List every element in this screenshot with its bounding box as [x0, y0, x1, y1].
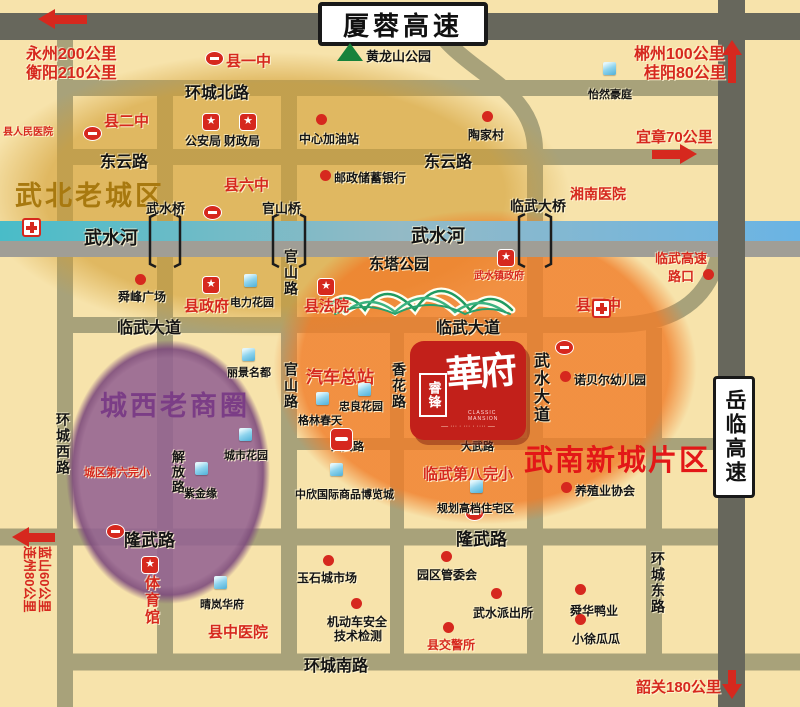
road-label-dongyun-east: 东云路 [424, 148, 472, 172]
poi-zhongxinjiayou-icon [316, 114, 327, 125]
poi-renminyiyuan-label: 县人民医院 [3, 123, 53, 138]
road-label-longwu-west: 隆武路 [124, 526, 175, 551]
arrow-east-icon [652, 144, 697, 164]
poi-xianliuzhong-icon [203, 205, 222, 220]
poi-gelin-label: 格林春天 [298, 412, 342, 428]
poi-shunfeng-label: 舜峰广场 [118, 288, 166, 305]
poi-gaosulukou-icon [703, 269, 714, 280]
poi-xianyizhong-label: 县一中 [226, 50, 271, 71]
poi-xianzhongyiyuan-label: 县中医院 [208, 621, 268, 642]
poi-gaosulukou-label: 临武高速 [655, 248, 707, 267]
poi-tiyuguan-label: 体育馆 [141, 575, 162, 626]
poi-jidongche-label2: 技术检测 [334, 627, 382, 644]
poi-xianyizhong-icon [205, 51, 224, 66]
road-label-dawu-east: 大武路 [461, 438, 494, 454]
poi-zhongliang-icon [358, 383, 371, 396]
poi-guihua-label: 规划高档住宅区 [437, 500, 514, 516]
arrow-west-icon [38, 9, 87, 29]
poi-xianliuzhong-label: 县六中 [224, 174, 269, 195]
poi-chengshi-icon [239, 428, 252, 441]
distance-lanshan: 蓝山60公里 [37, 546, 52, 612]
poi-zijin-label: 紫金缘 [184, 485, 217, 501]
poi-taojiacun-icon [482, 111, 493, 122]
poi-shunfeng-icon [135, 274, 146, 285]
poi-huanglongshan-label: 黄龙山公园 [366, 46, 431, 65]
poi-qinglan-label: 晴岚华府 [200, 596, 244, 612]
road-label-ring-west: 环城西路 [53, 412, 73, 476]
poi-dianli-label: 电力花园 [230, 294, 274, 310]
right-highway-label: 岳临高速 [719, 389, 749, 485]
poi-guihua-icon [470, 480, 483, 493]
arrow-west-longwu-icon [12, 527, 55, 547]
road-label-ring-north: 环城北路 [185, 79, 249, 103]
distance-guiyang: 桂阳80公里 [644, 59, 726, 83]
poi-wushuizhen-icon [497, 249, 515, 267]
poi-yushi-label: 玉石城市场 [297, 569, 357, 586]
bridge-label-guanshan: 官山桥 [262, 198, 301, 217]
road-label-ring-south: 环城南路 [304, 652, 368, 676]
poi-xianerzhong-label: 县二中 [104, 110, 149, 131]
poi-paichusuo-label: 武水派出所 [473, 604, 533, 621]
poi-xianfayuan-icon [317, 278, 335, 296]
poi-xiaoxuguagua-icon [575, 614, 586, 625]
top-highway-label: 厦蓉高速 [343, 6, 463, 43]
poi-xiangnanyiyuan-label: 湘南医院 [570, 184, 626, 204]
arrow-south-icon [722, 670, 742, 699]
distance-shaoguan: 韶关180公里 [636, 676, 721, 697]
poi-dongta-label: 东塔公园 [369, 253, 429, 274]
logo-seal-icon: 睿锋 [419, 373, 447, 417]
poi-caizheng-icon [239, 113, 257, 131]
poi-qichezongzhan-icon [330, 428, 353, 451]
road-label-longwu-east: 隆武路 [456, 525, 507, 550]
top-highway-sign: 厦蓉高速 [318, 2, 488, 46]
right-highway-sign: 岳临高速 [713, 376, 755, 498]
river-label-west: 武水河 [84, 224, 138, 250]
poi-yiran-icon [603, 62, 616, 75]
road-label-linwu-ave-west: 临武大道 [117, 314, 181, 338]
poi-yangzhi-icon [561, 482, 572, 493]
project-logo: 睿锋 華府 CLASSIC MANSION — ··· · ··· · ····… [410, 341, 526, 440]
poi-zhongxinguoji-label: 中欣国际商品博览城 [295, 486, 394, 502]
bridge-label-wushui: 武水桥 [146, 198, 185, 217]
road-label-guanshan-south: 官山路 [281, 362, 301, 410]
logo-tagline: — ··· · ··· · ···· — [410, 423, 526, 430]
poi-xiangnanyiyuan-icon [592, 299, 611, 318]
poi-xiaoxuguagua-label: 小徐瓜瓜 [572, 630, 620, 647]
poi-lijing-icon [242, 348, 255, 361]
distance-hengyang: 衡阳210公里 [26, 59, 117, 83]
poi-gongan-label: 公安局 [185, 132, 221, 149]
poi-nuobeier-icon [560, 371, 571, 382]
logo-brand-name: 華府 [444, 340, 517, 405]
distance-lianzhou: 连州80公里 [22, 546, 37, 612]
poi-xianzhengfu-icon [202, 276, 220, 294]
distance-lanshan-lianzhou: 蓝山60公里 连州80公里 [22, 546, 52, 612]
zone-label-west-old-business: 城西老商圈 [100, 384, 250, 423]
poi-gelin-icon [316, 392, 329, 405]
road-label-guanshan-north: 官山路 [281, 249, 301, 297]
river-label-east: 武水河 [411, 222, 465, 248]
poi-jiaojing-label: 县交警所 [427, 636, 475, 653]
poi-gaosulukou-label2: 路口 [668, 266, 694, 285]
logo-seal-text: 睿锋 [424, 381, 443, 409]
poi-yangzhi-label: 养殖业协会 [575, 482, 635, 499]
road-label-linwu-ave-east: 临武大道 [436, 314, 500, 338]
poi-wushuizhen-label: 武水镇政府 [474, 267, 524, 282]
logo-subtitle: CLASSIC MANSION [468, 410, 526, 422]
bridge-label-linwu: 临武大桥 [510, 196, 566, 216]
poi-qinglan-icon [214, 576, 227, 589]
poi-yuanqu-label: 园区管委会 [417, 566, 477, 583]
poi-bawanxiao-label: 临武第八完小 [423, 463, 513, 484]
poi-xiansanzhong-icon [555, 340, 574, 355]
zone-label-south-new-district: 武南新城片区 [524, 437, 710, 479]
poi-yiran-label: 怡然豪庭 [588, 86, 632, 102]
poi-zijin-icon [195, 462, 208, 475]
poi-liuwanxiao-icon [106, 524, 125, 539]
zone-label-north-old-town: 武北老城区 [15, 174, 165, 213]
poi-chengshi-label: 城市花园 [224, 447, 268, 463]
poi-xianzhengfu-label: 县政府 [184, 295, 229, 316]
poi-dianli-icon [244, 274, 257, 287]
arrow-north-icon [722, 40, 742, 83]
poi-yushi-icon [323, 555, 334, 566]
poi-youzheng-label: 邮政储蓄银行 [334, 169, 406, 186]
poi-paichusuo-icon [491, 588, 502, 599]
poi-zhongliang-label: 忠良花园 [339, 398, 383, 414]
poi-xianfayuan-label: 县法院 [304, 295, 349, 316]
poi-renminyiyuan-icon [22, 218, 41, 237]
road-label-xianghua: 香花路 [389, 362, 409, 410]
road-label-wushui-ave: 武水大道 [527, 352, 551, 424]
poi-jiaojing-icon [443, 622, 454, 633]
river-and-highways [0, 0, 800, 707]
poi-zhongxinguoji-icon [330, 463, 343, 476]
poi-liuwanxiao-label: 城区第六完小 [84, 464, 150, 480]
poi-nuobeier-label: 诺贝尔幼儿园 [574, 371, 646, 388]
road-label-ring-east: 环城东路 [648, 551, 668, 615]
location-map: 厦蓉高速 岳临高速 武北老城区 城西老商圈 武南新城片区 环城北路 东云路 东云… [0, 0, 800, 707]
poi-tiyuguan-icon [141, 556, 159, 574]
poi-taojiacun-label: 陶家村 [468, 126, 504, 143]
poi-caizheng-label: 财政局 [224, 132, 260, 149]
poi-lijing-label: 丽景名都 [227, 364, 271, 380]
poi-huanglongshan-icon [337, 43, 363, 61]
poi-yuanqu-icon [441, 551, 452, 562]
poi-gongan-icon [202, 113, 220, 131]
poi-shunhua-icon [575, 584, 586, 595]
poi-zhongxinjiayou-label: 中心加油站 [299, 130, 359, 147]
poi-xianerzhong-icon [83, 126, 102, 141]
road-label-dongyun-west: 东云路 [100, 148, 148, 172]
poi-jidongche-icon [351, 598, 362, 609]
poi-youzheng-icon [320, 170, 331, 181]
